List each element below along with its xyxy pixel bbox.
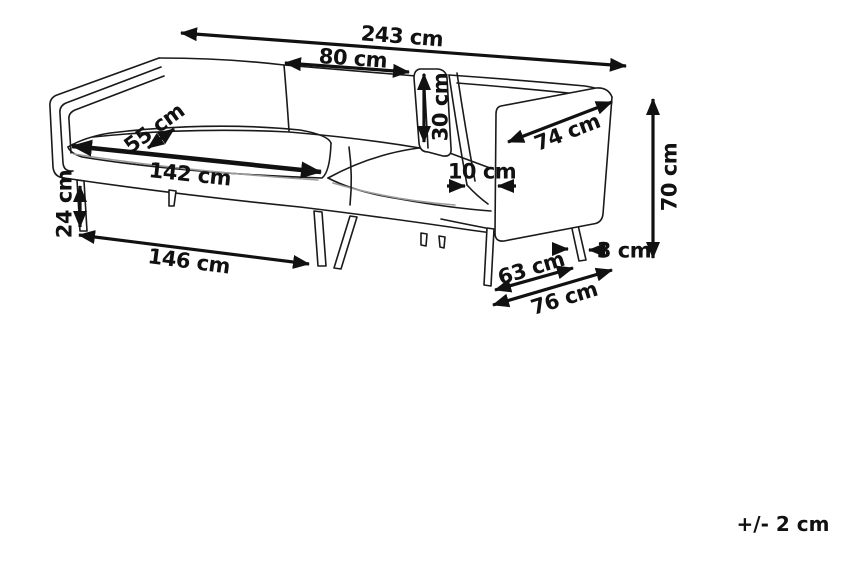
dim-overall-height-label: 70 cm	[657, 143, 681, 211]
rear-leg-stub-b	[439, 236, 445, 248]
dim-backrest-cushion-width-label: 80 cm	[318, 44, 388, 73]
dim-leg-height-label: 24 cm	[52, 170, 76, 238]
rear-leg-stub-a	[421, 233, 427, 246]
dim-back-pillow-height-label: 30 cm	[428, 73, 452, 141]
dim-backrest-gap-label: 10 cm	[448, 159, 516, 183]
sofa-dimension-diagram-canvas: 243 cm 80 cm 30 cm 74 cm 10 cm 142 cm 55…	[0, 0, 864, 564]
tolerance-label: +/- 2 cm	[737, 512, 830, 536]
front-middle-leg-stub	[169, 190, 176, 206]
dim-leg-thickness-label: 3 cm	[597, 238, 651, 262]
